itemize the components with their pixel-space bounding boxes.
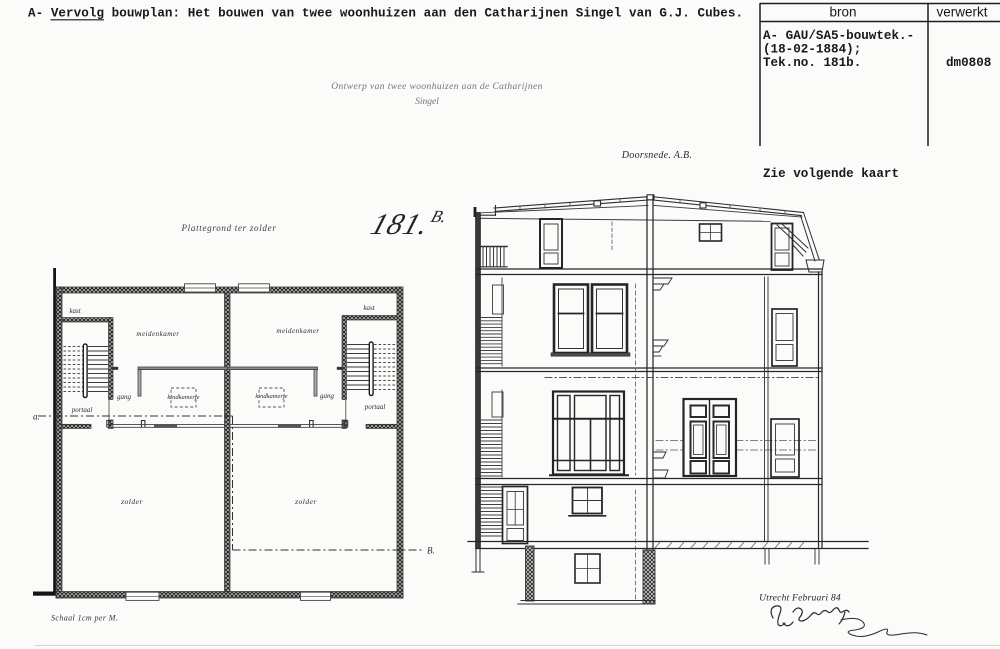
svg-text:Singel: Singel [415,97,439,107]
svg-text:kast: kast [69,307,81,315]
svg-text:A- Vervolg bouwplan: Het bouwe: A- Vervolg bouwplan: Het bouwen van twee… [28,7,743,21]
svg-text:a.: a. [33,412,40,422]
svg-text:kindkamerje: kindkamerje [167,394,199,401]
svg-text:kindkamerje: kindkamerje [255,393,287,400]
svg-text:181.: 181. [367,208,434,241]
svg-text:A- GAU/SA5-bouwtek.-: A- GAU/SA5-bouwtek.- [763,29,914,43]
svg-text:bron: bron [829,5,856,20]
svg-text:gang: gang [117,393,132,401]
svg-text:Zie volgende kaart: Zie volgende kaart [763,167,899,181]
svg-text:Doorsnede. A.B.: Doorsnede. A.B. [621,150,692,161]
svg-text:(18-02-1884);: (18-02-1884); [763,43,861,57]
svg-text:Plattegrond ter zolder: Plattegrond ter zolder [180,223,276,233]
svg-text:portaal: portaal [71,406,93,414]
svg-text:meidenkamer: meidenkamer [136,330,179,338]
svg-text:Utrecht Februari 84: Utrecht Februari 84 [759,593,841,604]
svg-text:Schaal 1cm per M.: Schaal 1cm per M. [51,614,118,623]
svg-text:gang: gang [320,392,335,400]
svg-text:zolder: zolder [120,497,143,506]
svg-text:Ontwerp van twee woonhuizen aa: Ontwerp van twee woonhuizen aan de Catha… [331,82,543,92]
svg-text:portaal: portaal [364,403,386,411]
svg-text:meidenkamer: meidenkamer [276,327,319,335]
svg-text:B.: B. [427,546,435,556]
svg-text:kast: kast [363,304,375,312]
svg-text:dm0808: dm0808 [946,56,991,70]
svg-text:zolder: zolder [294,497,317,506]
svg-text:verwerkt: verwerkt [936,5,987,20]
svg-text:Tek.no. 181b.: Tek.no. 181b. [763,56,861,70]
